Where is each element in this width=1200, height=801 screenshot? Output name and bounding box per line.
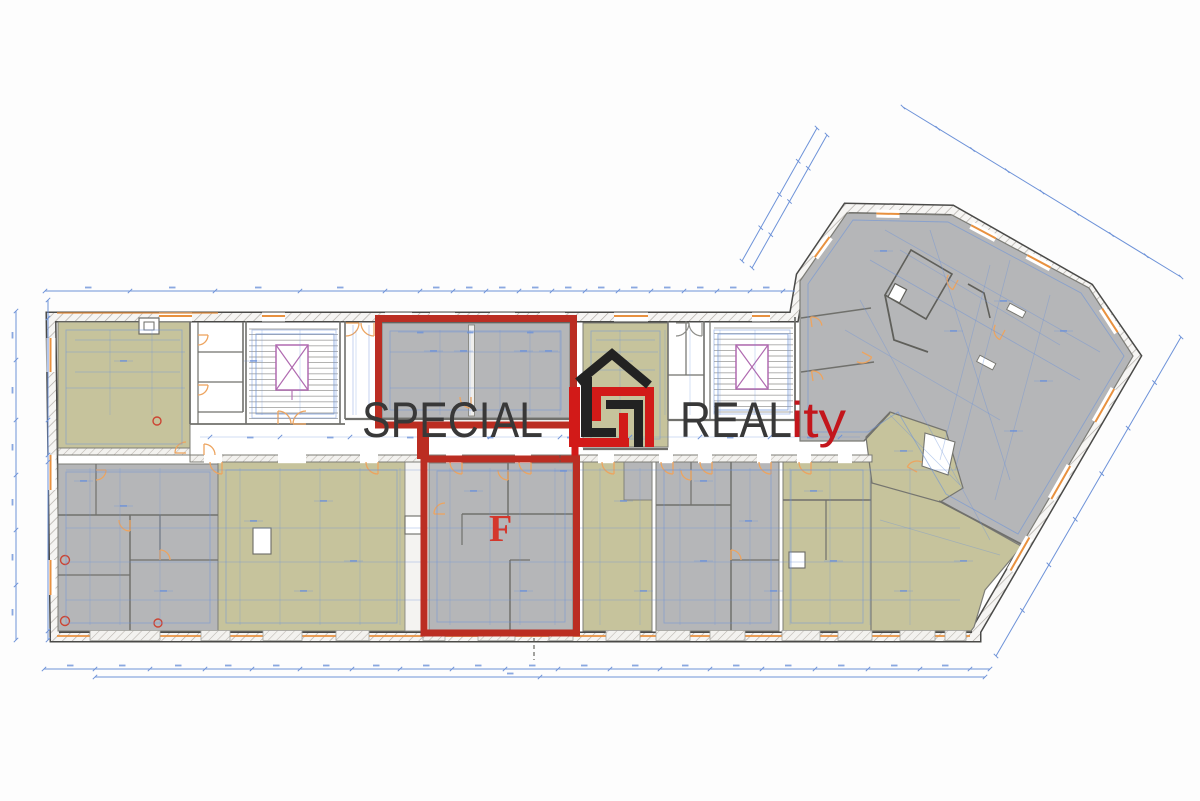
svg-text:REAL: REAL xyxy=(680,392,792,448)
svg-text:ity: ity xyxy=(791,392,846,448)
svg-text:F: F xyxy=(489,508,512,550)
svg-text:SPECIAL: SPECIAL xyxy=(362,392,543,448)
